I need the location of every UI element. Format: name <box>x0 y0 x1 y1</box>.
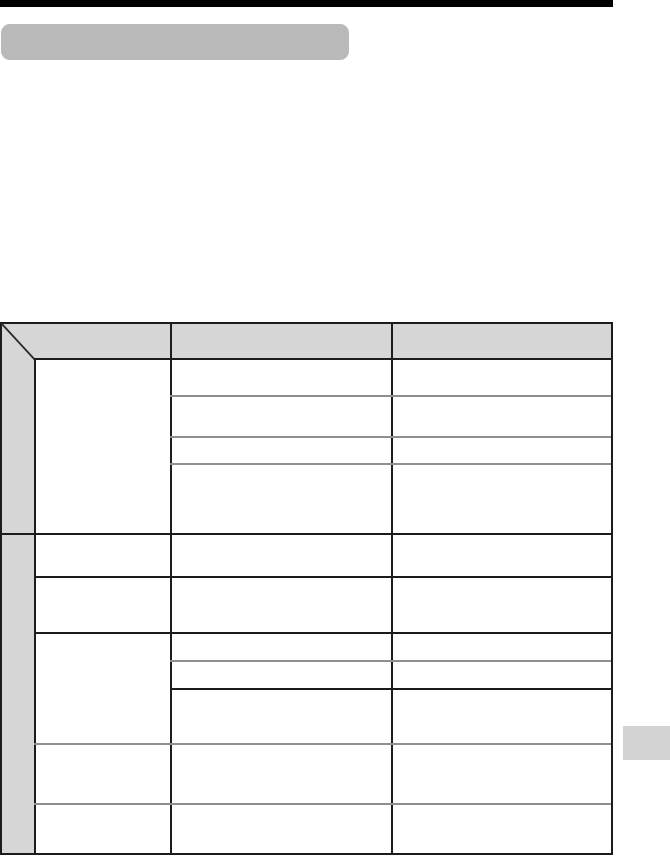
table-header-row <box>2 324 611 359</box>
manual-page <box>0 0 670 856</box>
row-divider <box>2 533 611 535</box>
diagonal-header-divider <box>1 323 36 361</box>
row-divider <box>34 358 611 360</box>
row-divider <box>34 576 611 578</box>
column-divider-2 <box>391 324 393 853</box>
row-divider <box>34 743 611 745</box>
row-divider <box>170 436 611 438</box>
row-divider <box>170 688 611 690</box>
section-heading-placeholder <box>1 24 349 60</box>
table-border-bottom <box>0 853 613 855</box>
table-border-top <box>0 322 613 324</box>
row-divider <box>170 395 611 397</box>
settings-table <box>0 322 613 855</box>
column-divider-1 <box>170 324 172 853</box>
row-divider <box>34 803 611 805</box>
table-border-left <box>0 322 2 855</box>
strip-column-divider <box>34 358 36 855</box>
row-divider <box>170 463 611 465</box>
category-strip-column <box>2 324 34 853</box>
page-edge-tab <box>623 726 670 760</box>
row-divider <box>170 660 611 662</box>
table-border-right <box>611 322 613 855</box>
top-black-bar <box>0 0 613 7</box>
row-divider <box>34 632 611 634</box>
